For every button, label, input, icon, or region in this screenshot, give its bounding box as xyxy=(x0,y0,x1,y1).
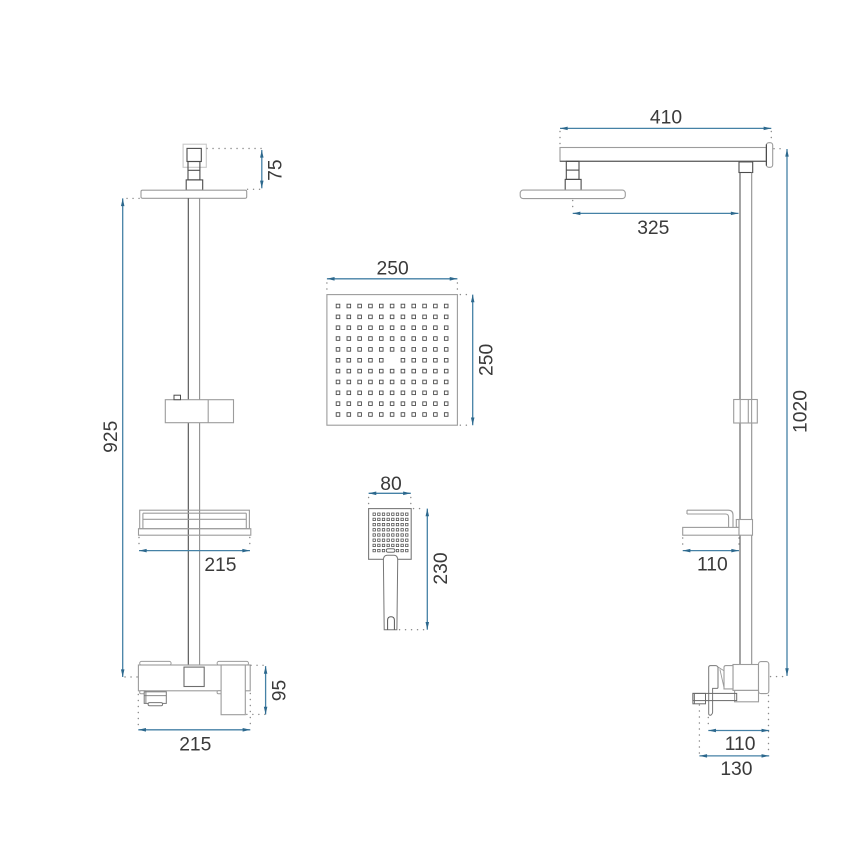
svg-text:1020: 1020 xyxy=(790,390,811,433)
svg-text:110: 110 xyxy=(725,734,756,755)
svg-text:230: 230 xyxy=(431,552,452,584)
svg-text:130: 130 xyxy=(720,759,752,780)
svg-text:95: 95 xyxy=(269,680,290,701)
svg-text:410: 410 xyxy=(650,107,682,128)
svg-text:215: 215 xyxy=(204,555,236,576)
svg-text:325: 325 xyxy=(637,218,669,239)
svg-text:215: 215 xyxy=(179,734,211,755)
svg-text:75: 75 xyxy=(265,159,286,180)
svg-text:925: 925 xyxy=(101,421,122,453)
svg-text:250: 250 xyxy=(377,259,409,280)
svg-text:80: 80 xyxy=(380,474,401,495)
svg-text:110: 110 xyxy=(697,555,728,576)
svg-text:250: 250 xyxy=(476,344,497,376)
